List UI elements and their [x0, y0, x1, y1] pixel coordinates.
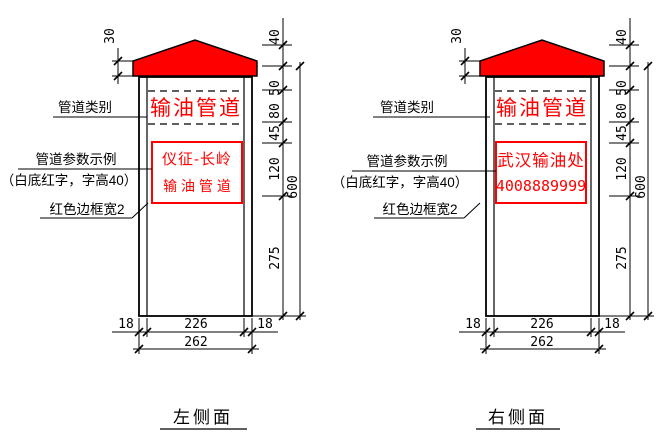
right-dim-18-right: 18: [604, 317, 620, 332]
left-dim-40: 40: [268, 29, 283, 45]
right-dim-45: 45: [615, 125, 630, 141]
right-sign-line1: 武汉输油处: [497, 151, 585, 170]
left-label-params: 管道参数示例: [36, 151, 117, 167]
left-dim-80: 80: [268, 103, 283, 119]
left-dim-262: 262: [184, 335, 207, 350]
left-sign-line1: 仪征-长岭: [162, 151, 232, 168]
right-dim-40: 40: [615, 29, 630, 45]
right-diagram: 输油管道 武汉输油处 4008889999 管道类别 管道参数示例 （白底红字，…: [332, 18, 654, 429]
left-dim-30-group: [112, 48, 133, 84]
right-dim-262: 262: [530, 335, 553, 350]
left-dim-45: 45: [268, 125, 283, 141]
left-dim-18-left: 18: [118, 317, 134, 332]
right-dim-30-group: [459, 48, 480, 84]
right-sign-line2: 4008889999: [496, 177, 586, 195]
left-dim-30: 30: [103, 28, 118, 44]
left-diagram: 输油管道 仪征-长岭 输 油 管 道 管道类别 管道参数示例 （白底红字，字高4…: [1, 18, 306, 429]
pipeline-marker-drawing: 输油管道 仪征-长岭 输 油 管 道 管道类别 管道参数示例 （白底红字，字高4…: [0, 0, 669, 447]
left-pipeline-type-header: 输油管道: [150, 97, 242, 120]
drawing-canvas: 输油管道 仪征-长岭 输 油 管 道 管道类别 管道参数示例 （白底红字，字高4…: [0, 0, 669, 447]
left-label-border-width: 红色边框宽2: [49, 201, 124, 217]
right-label-border-width: 红色边框宽2: [382, 201, 457, 217]
left-dim-275: 275: [268, 246, 283, 269]
right-dim-226: 226: [530, 317, 553, 332]
left-dim-600: 600: [286, 175, 301, 198]
left-panel-title: 左侧面: [173, 408, 233, 427]
right-dim-120: 120: [615, 157, 630, 180]
right-panel-title: 右侧面: [488, 408, 548, 427]
right-label-params-note: （白底红字，字高40）: [332, 174, 469, 190]
left-dim-120: 120: [268, 157, 283, 180]
left-dim-226: 226: [184, 317, 207, 332]
right-dim-275: 275: [615, 246, 630, 269]
left-dim-50: 50: [268, 80, 283, 96]
left-sign-line2: 输 油 管 道: [163, 178, 231, 194]
left-dim-18-right: 18: [257, 317, 273, 332]
right-label-category: 管道类别: [380, 100, 434, 115]
right-dim-600: 600: [634, 175, 649, 198]
right-dim-80: 80: [615, 103, 630, 119]
left-cap-pentagon: [133, 40, 257, 76]
right-dim-30: 30: [450, 28, 465, 44]
right-cap-pentagon: [480, 40, 604, 76]
left-label-category: 管道类别: [58, 100, 112, 115]
right-leader-border-slash: [464, 203, 480, 218]
left-label-params-note: （白底红字，字高40）: [1, 172, 138, 188]
right-dim-50: 50: [615, 80, 630, 96]
right-pipeline-type-header: 输油管道: [496, 97, 588, 120]
right-label-params: 管道参数示例: [367, 153, 448, 169]
right-dim-18-left: 18: [465, 317, 481, 332]
